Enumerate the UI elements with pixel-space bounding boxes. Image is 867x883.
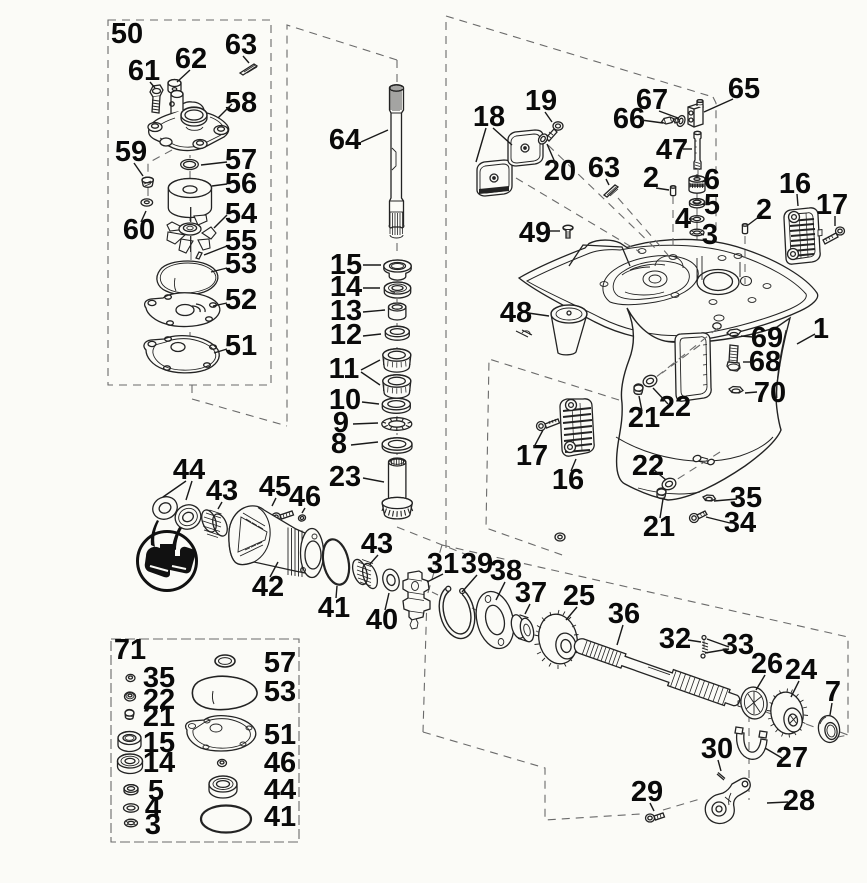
svg-text:68: 68: [749, 346, 781, 378]
svg-text:21: 21: [628, 402, 660, 434]
svg-text:60: 60: [123, 214, 155, 246]
svg-text:19: 19: [525, 85, 557, 117]
svg-text:50: 50: [111, 18, 143, 50]
svg-text:4: 4: [675, 203, 691, 235]
svg-text:41: 41: [318, 592, 350, 624]
svg-text:8: 8: [331, 428, 347, 460]
svg-text:29: 29: [631, 776, 663, 808]
svg-text:26: 26: [751, 648, 783, 680]
svg-text:25: 25: [563, 580, 595, 612]
svg-text:65: 65: [728, 73, 760, 105]
svg-text:71: 71: [114, 634, 146, 666]
svg-text:64: 64: [329, 124, 361, 156]
svg-text:45: 45: [259, 471, 291, 503]
svg-text:70: 70: [754, 377, 786, 409]
svg-text:12: 12: [330, 319, 362, 351]
svg-text:22: 22: [659, 391, 691, 423]
svg-text:59: 59: [115, 136, 147, 168]
svg-text:3: 3: [702, 219, 718, 251]
svg-text:33: 33: [722, 629, 754, 661]
svg-text:5: 5: [704, 189, 720, 221]
svg-text:44: 44: [173, 454, 205, 486]
svg-text:24: 24: [785, 654, 817, 686]
svg-text:18: 18: [473, 101, 505, 133]
svg-text:20: 20: [544, 155, 576, 187]
svg-text:42: 42: [252, 571, 284, 603]
svg-text:30: 30: [701, 733, 733, 765]
svg-text:36: 36: [608, 598, 640, 630]
svg-text:3: 3: [145, 809, 161, 841]
svg-text:61: 61: [128, 55, 160, 87]
svg-text:56: 56: [225, 168, 257, 200]
svg-text:52: 52: [225, 284, 257, 316]
svg-text:28: 28: [783, 785, 815, 817]
svg-text:63: 63: [225, 29, 257, 61]
svg-text:47: 47: [656, 134, 688, 166]
svg-text:53: 53: [225, 248, 257, 280]
svg-text:2: 2: [643, 162, 659, 194]
svg-text:23: 23: [329, 461, 361, 493]
svg-text:22: 22: [632, 450, 664, 482]
svg-text:32: 32: [659, 623, 691, 655]
svg-text:49: 49: [519, 217, 551, 249]
svg-text:63: 63: [588, 152, 620, 184]
svg-text:40: 40: [366, 604, 398, 636]
svg-text:66: 66: [613, 103, 645, 135]
svg-text:48: 48: [500, 297, 532, 329]
svg-text:53: 53: [264, 676, 296, 708]
svg-text:1: 1: [813, 313, 829, 345]
svg-text:2: 2: [756, 194, 772, 226]
svg-text:41: 41: [264, 801, 296, 833]
svg-text:58: 58: [225, 87, 257, 119]
svg-text:51: 51: [225, 330, 257, 362]
svg-text:11: 11: [329, 353, 360, 385]
svg-text:7: 7: [825, 676, 841, 708]
svg-text:16: 16: [779, 168, 811, 200]
svg-text:37: 37: [515, 577, 547, 609]
svg-text:17: 17: [816, 189, 848, 221]
svg-text:62: 62: [175, 43, 207, 75]
svg-text:17: 17: [516, 440, 548, 472]
svg-text:57: 57: [264, 647, 296, 679]
svg-text:31: 31: [427, 548, 459, 580]
svg-text:16: 16: [552, 464, 584, 496]
svg-text:21: 21: [643, 511, 675, 543]
